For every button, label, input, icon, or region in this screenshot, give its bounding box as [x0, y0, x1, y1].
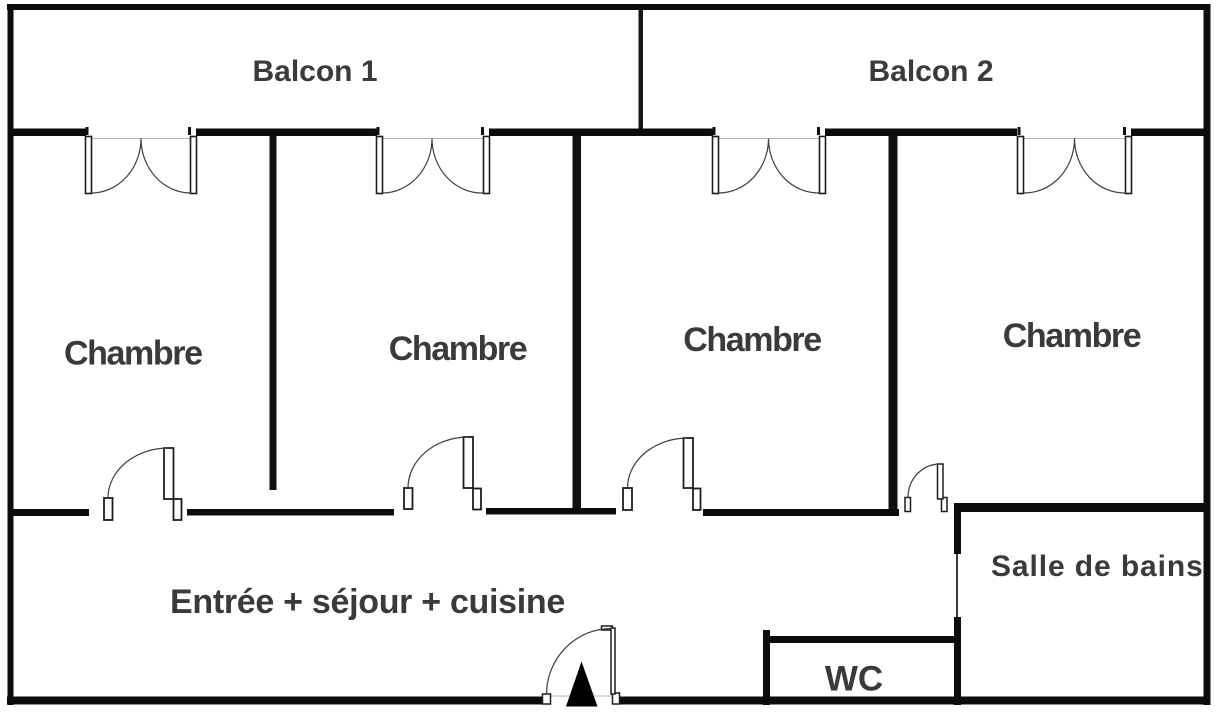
svg-text:Salle de bains: Salle de bains: [991, 550, 1204, 583]
svg-text:Chambre: Chambre: [389, 330, 527, 368]
svg-text:Balcon 2: Balcon 2: [868, 55, 993, 88]
svg-text:Entrée + séjour + cuisine: Entrée + séjour + cuisine: [170, 583, 565, 621]
svg-text:WC: WC: [825, 660, 883, 699]
svg-text:Chambre: Chambre: [64, 335, 202, 373]
svg-text:Balcon 1: Balcon 1: [252, 55, 377, 88]
svg-text:Chambre: Chambre: [683, 321, 821, 359]
svg-text:Chambre: Chambre: [1003, 317, 1141, 355]
